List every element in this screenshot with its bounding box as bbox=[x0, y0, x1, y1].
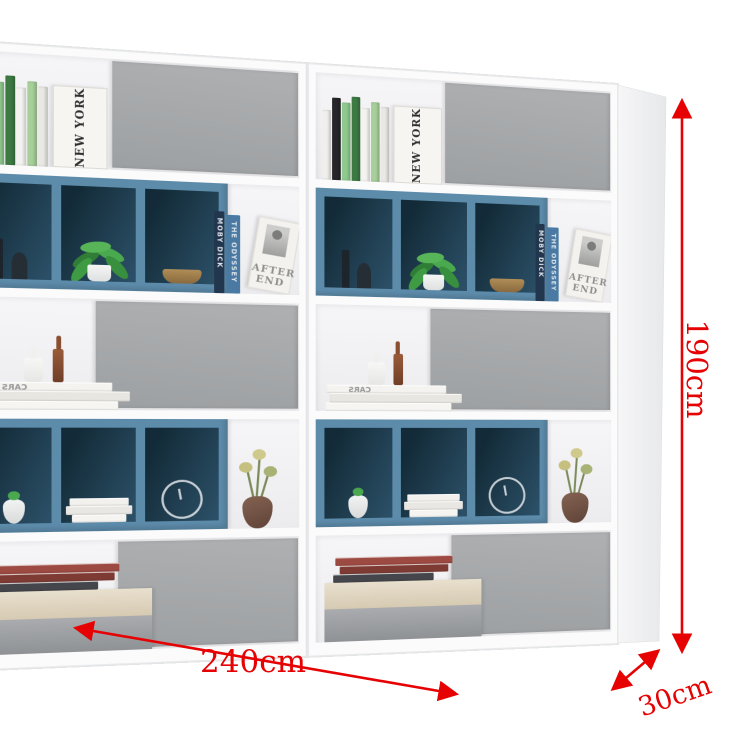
stem bbox=[564, 466, 571, 494]
shelf-row-4 bbox=[0, 419, 299, 533]
cube-compartment bbox=[0, 428, 52, 524]
book-title: MOBY DICK bbox=[215, 217, 223, 293]
moby-dick-book: MOBY DICK bbox=[214, 211, 224, 293]
book-spine bbox=[370, 102, 379, 182]
book-spine bbox=[38, 87, 48, 168]
height-dimension-label: 190cm bbox=[680, 309, 714, 429]
cube-compartment bbox=[475, 428, 539, 516]
cube-compartment bbox=[146, 189, 219, 284]
book-spine bbox=[380, 107, 389, 183]
flower bbox=[253, 449, 266, 460]
storage-chest bbox=[324, 579, 481, 643]
shelf-row-3: CARS bbox=[0, 296, 299, 411]
book-spine bbox=[351, 97, 360, 182]
cube-compartment bbox=[61, 428, 136, 523]
shelf-row-1: NEW YORK bbox=[0, 49, 299, 179]
cube-compartment bbox=[401, 200, 467, 291]
new-york-book: NEW YORK bbox=[53, 85, 108, 170]
odyssey-book: THE ODYSSEY bbox=[547, 227, 559, 301]
flower bbox=[264, 466, 277, 477]
dark-candlestick bbox=[342, 250, 350, 288]
cube-compartment bbox=[146, 428, 219, 521]
cube-compartment bbox=[324, 197, 392, 289]
stem bbox=[256, 457, 261, 498]
shelf-row-2: MOBY DICK THE ODYSSEY AFTER END bbox=[315, 188, 611, 303]
flower bbox=[239, 462, 252, 473]
book-spine bbox=[0, 82, 4, 165]
book-spine bbox=[5, 76, 15, 166]
book-title: MOBY DICK bbox=[537, 230, 544, 301]
dark-candlestick bbox=[0, 238, 3, 279]
book-spine bbox=[332, 98, 341, 181]
book-title: NEW YORK bbox=[74, 88, 87, 169]
book-spine bbox=[27, 82, 37, 167]
dark-vase bbox=[357, 263, 371, 289]
odyssey-book: THE ODYSSEY bbox=[227, 215, 241, 294]
moby-dick-book: MOBY DICK bbox=[536, 224, 545, 301]
book-spine bbox=[322, 110, 331, 180]
chest-gray-drawer bbox=[0, 615, 152, 656]
depth-dimension-arrow bbox=[613, 651, 658, 689]
flat-book bbox=[325, 403, 451, 412]
bookcase-unit-left: NEW YORK bbox=[0, 40, 306, 672]
flat-book bbox=[72, 514, 126, 523]
cube-compartment bbox=[475, 203, 539, 292]
stacked-books bbox=[335, 555, 452, 583]
depth-dimension-label: 30cm bbox=[618, 664, 732, 729]
book-spine bbox=[341, 103, 350, 181]
cube-compartment bbox=[324, 428, 392, 518]
storage-chest bbox=[0, 588, 152, 656]
shelf-row-5 bbox=[315, 530, 611, 643]
flower bbox=[570, 448, 582, 458]
brown-vase bbox=[561, 492, 588, 523]
flat-book bbox=[410, 509, 458, 517]
cover-photo bbox=[579, 236, 604, 268]
book-title: THE ODYSSEY bbox=[550, 233, 557, 301]
flower-vase bbox=[234, 449, 283, 529]
dark-vase bbox=[12, 252, 28, 279]
stem bbox=[573, 456, 577, 494]
shelf-row-5 bbox=[0, 536, 299, 657]
white-vase bbox=[348, 495, 367, 518]
gray-sliding-panel bbox=[445, 83, 610, 191]
blue-cube-insert bbox=[0, 419, 227, 533]
blue-cube-insert bbox=[0, 172, 227, 293]
after-end-book: AFTER END bbox=[566, 228, 612, 302]
cover-photo bbox=[262, 224, 290, 258]
white-pot bbox=[87, 264, 111, 281]
brown-bottle bbox=[53, 349, 64, 382]
book-spines bbox=[322, 95, 389, 183]
white-pot bbox=[423, 274, 444, 290]
blue-cube-insert bbox=[315, 188, 548, 301]
shelf-row-2: MOBY DICK THE ODYSSEY AFTER END bbox=[0, 172, 299, 294]
chest-gray-drawer bbox=[324, 605, 481, 643]
book-row: NEW YORK bbox=[322, 95, 442, 185]
new-york-book: NEW YORK bbox=[393, 106, 442, 185]
book-spine bbox=[16, 88, 26, 167]
flower-vase bbox=[553, 448, 597, 523]
book-row: NEW YORK bbox=[0, 74, 108, 170]
wire-clock bbox=[486, 474, 529, 516]
flat-book bbox=[0, 401, 118, 411]
book-title: AFTER END bbox=[249, 263, 292, 290]
blue-cube-insert bbox=[315, 420, 548, 527]
wooden-bowl bbox=[162, 269, 201, 284]
stem bbox=[246, 468, 254, 498]
shelf-row-3: CARS bbox=[315, 304, 611, 412]
product-dimension-image: NEW YORK bbox=[0, 0, 750, 750]
stacked-books bbox=[0, 563, 119, 593]
shelf-row-1: NEW YORK bbox=[315, 72, 611, 193]
bookcase-front: NEW YORK bbox=[0, 40, 618, 672]
standing-books: MOBY DICK THE ODYSSEY AFTER END bbox=[536, 224, 603, 303]
book-title: AFTER END bbox=[567, 273, 605, 298]
white-vase bbox=[2, 499, 24, 524]
book-spines bbox=[0, 74, 48, 167]
brown-vase bbox=[243, 496, 273, 529]
brown-bottle bbox=[393, 354, 403, 385]
bookcase-side-panel bbox=[618, 85, 666, 643]
standing-books: MOBY DICK THE ODYSSEY AFTER END bbox=[214, 211, 289, 295]
book-spine bbox=[361, 108, 370, 182]
book-title: NEW YORK bbox=[412, 108, 424, 184]
book-title: CARS bbox=[348, 386, 371, 395]
stacked-books bbox=[326, 385, 461, 412]
wire-clock bbox=[158, 476, 206, 521]
book-title: THE ODYSSEY bbox=[229, 221, 237, 293]
bookcase-unit-right: NEW YORK bbox=[306, 63, 618, 657]
white-bottle bbox=[24, 358, 43, 383]
wooden-bowl bbox=[490, 278, 525, 292]
flower bbox=[580, 464, 592, 474]
after-end-book: AFTER END bbox=[247, 216, 298, 295]
shelf-row-4 bbox=[315, 420, 611, 527]
white-bottle bbox=[367, 362, 384, 385]
cube-compartment bbox=[401, 428, 467, 517]
stacked-books bbox=[404, 493, 463, 517]
stacked-books bbox=[66, 497, 132, 522]
flat-book bbox=[0, 391, 130, 402]
book-title: CARS bbox=[2, 383, 28, 392]
cube-compartment bbox=[61, 186, 136, 283]
gray-sliding-panel bbox=[112, 61, 298, 177]
cube-compartment bbox=[0, 182, 52, 280]
flower bbox=[558, 460, 570, 470]
